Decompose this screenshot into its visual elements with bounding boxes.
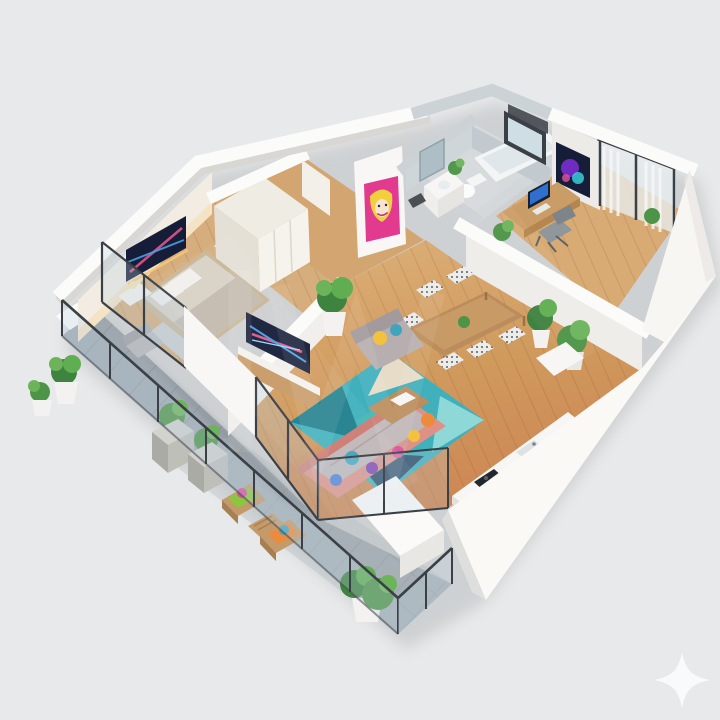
living-plant bbox=[317, 283, 347, 313]
desk bbox=[502, 180, 580, 238]
pillow bbox=[150, 281, 184, 306]
cooktop bbox=[474, 469, 504, 491]
office-plant-2 bbox=[644, 208, 660, 224]
geometric-rug bbox=[290, 352, 484, 494]
background bbox=[0, 0, 720, 720]
office-floor bbox=[496, 154, 684, 316]
balcony-bushes bbox=[340, 566, 397, 622]
lamp bbox=[129, 281, 137, 289]
bathtub bbox=[474, 126, 564, 182]
dining-chair bbox=[396, 266, 474, 330]
monitor bbox=[528, 180, 550, 209]
office-chair bbox=[536, 205, 576, 252]
pillow-teal bbox=[345, 451, 359, 465]
double-bed bbox=[136, 250, 270, 352]
round-planters bbox=[28, 355, 81, 416]
living-tv bbox=[246, 312, 310, 374]
side-table bbox=[248, 513, 284, 537]
dining-chair bbox=[436, 326, 526, 370]
laundry-basket bbox=[408, 193, 426, 208]
bedroom bbox=[78, 172, 314, 394]
vanity-sink bbox=[424, 170, 464, 218]
toilet bbox=[457, 173, 487, 198]
dining-plants bbox=[527, 299, 590, 370]
office-plant bbox=[493, 223, 511, 241]
lounge-chair-2 bbox=[260, 519, 306, 561]
glass-facade bbox=[102, 242, 448, 520]
floors bbox=[102, 122, 684, 520]
pop-art-portrait bbox=[364, 176, 400, 242]
watermark-letters bbox=[240, 270, 434, 452]
kitchenette bbox=[452, 342, 588, 520]
mirror bbox=[420, 139, 444, 181]
pillow-yellow bbox=[373, 331, 387, 345]
nightstand-right bbox=[214, 232, 248, 256]
floorplan-render bbox=[0, 0, 720, 720]
bedroom-rug bbox=[150, 262, 314, 394]
keyboard bbox=[532, 203, 551, 215]
bedroom-tv-art bbox=[126, 216, 188, 284]
pillow-magenta bbox=[392, 446, 404, 458]
bathroom-plant bbox=[448, 161, 462, 175]
lounge-chair-1 bbox=[222, 484, 266, 524]
office-wall-art bbox=[556, 142, 590, 198]
pop-art-wall bbox=[354, 146, 406, 258]
dining-area bbox=[396, 266, 590, 370]
walls-interior bbox=[214, 122, 644, 436]
bedroom-floor bbox=[102, 196, 338, 400]
curtains bbox=[604, 146, 660, 232]
bedroom-chair bbox=[122, 322, 164, 358]
watermark-overlay bbox=[240, 270, 434, 452]
pillow-blue bbox=[330, 474, 342, 486]
living-dining-floor bbox=[228, 240, 642, 520]
nightstand-left bbox=[118, 281, 152, 306]
living-room bbox=[238, 277, 484, 498]
roof-window bbox=[508, 104, 548, 134]
hall-floor bbox=[214, 156, 424, 286]
pillow-teal bbox=[279, 525, 289, 535]
pillow-orange bbox=[421, 413, 435, 427]
lamp bbox=[225, 232, 233, 240]
office bbox=[493, 120, 676, 252]
coffee-table bbox=[368, 386, 430, 424]
balcony bbox=[56, 290, 452, 634]
tv-console bbox=[238, 346, 320, 412]
glass-glare bbox=[150, 155, 620, 525]
dining-table bbox=[406, 292, 524, 366]
walls-exterior bbox=[62, 90, 716, 600]
sparkle-icon bbox=[654, 652, 710, 708]
glass-railing bbox=[62, 300, 452, 634]
kitchen-counter bbox=[452, 412, 588, 512]
bathroom-floor bbox=[404, 122, 548, 218]
square-planters bbox=[152, 400, 228, 493]
wardrobe bbox=[214, 177, 310, 292]
pillow-magenta bbox=[237, 488, 247, 498]
bathroom bbox=[406, 114, 564, 218]
balcony-furniture bbox=[28, 355, 397, 622]
pillow-yellow bbox=[408, 430, 420, 442]
balcony-floor bbox=[62, 308, 452, 634]
armchair bbox=[350, 308, 424, 370]
centerpiece-plant bbox=[458, 316, 470, 328]
office-glass-door bbox=[598, 138, 676, 234]
pillow-purple bbox=[366, 462, 378, 474]
corner-sofa bbox=[296, 396, 446, 498]
pillow-teal bbox=[390, 324, 402, 336]
pillow bbox=[168, 268, 202, 293]
building-shadow bbox=[66, 102, 720, 650]
bathroom-window bbox=[506, 114, 544, 162]
kitchen-sink bbox=[516, 440, 544, 460]
